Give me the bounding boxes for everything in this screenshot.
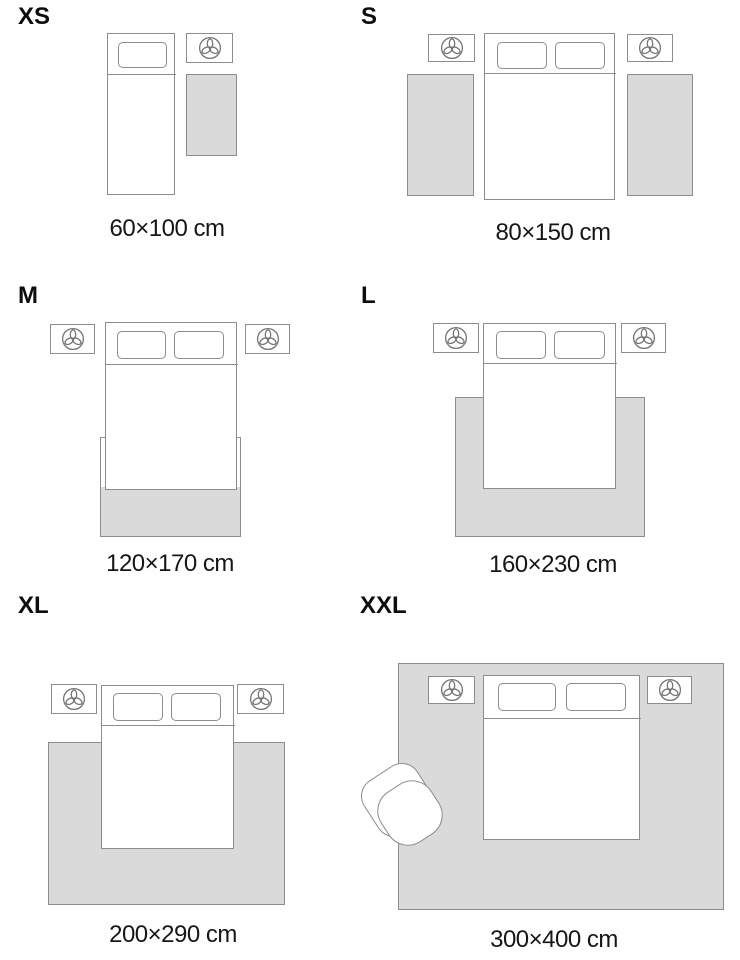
rug-s-left xyxy=(407,74,474,196)
nightstand-left xyxy=(428,34,475,62)
pillow-left xyxy=(117,331,166,359)
dimension-label-m: 120×170 cm xyxy=(40,550,300,579)
plant-icon xyxy=(632,326,656,350)
double-bed xyxy=(483,675,640,840)
bed-headboard-line xyxy=(101,725,235,726)
pillow-right xyxy=(555,42,605,69)
dimension-label-xxl: 300×400 cm xyxy=(424,926,684,955)
bed-headboard-line xyxy=(484,73,616,74)
size-label-l: L xyxy=(361,282,376,311)
single-bed xyxy=(107,33,175,195)
plant-icon xyxy=(440,36,464,60)
plant-icon xyxy=(658,678,682,702)
dimension-label-xl: 200×290 cm xyxy=(43,921,303,950)
bed-headboard-line xyxy=(483,718,641,719)
dimension-label-xs: 60×100 cm xyxy=(37,215,297,244)
size-label-m: M xyxy=(18,282,38,311)
plant-icon xyxy=(440,678,464,702)
pillow-right xyxy=(171,693,221,721)
nightstand-left xyxy=(433,323,479,353)
dimension-label-l: 160×230 cm xyxy=(423,551,683,580)
pillow-right xyxy=(174,331,224,359)
plant-icon xyxy=(198,36,222,60)
pillow-left xyxy=(498,683,556,711)
nightstand-left xyxy=(51,684,97,714)
size-label-s: S xyxy=(361,3,377,32)
rug-xs xyxy=(186,74,237,156)
pillow-right xyxy=(554,331,605,359)
plant-icon xyxy=(62,687,86,711)
nightstand xyxy=(186,33,233,63)
plant-icon xyxy=(638,36,662,60)
rug-s-right xyxy=(627,74,693,196)
pillow-left xyxy=(496,331,546,359)
plant-icon xyxy=(249,687,273,711)
pillow-left xyxy=(497,42,547,69)
size-label-xxl: XXL xyxy=(360,592,407,621)
nightstand-right xyxy=(621,323,666,353)
pillow xyxy=(118,42,167,68)
double-bed xyxy=(484,33,615,200)
double-bed xyxy=(483,323,616,489)
nightstand-right xyxy=(647,676,692,704)
double-bed xyxy=(105,322,237,490)
size-label-xl: XL xyxy=(18,592,49,621)
bed-headboard-line xyxy=(107,74,176,75)
rug-visible-area xyxy=(101,487,240,536)
nightstand-right xyxy=(245,324,290,354)
bed-headboard-line xyxy=(105,364,238,365)
bed-headboard-line xyxy=(483,363,617,364)
pillow-left xyxy=(113,693,163,721)
size-label-xs: XS xyxy=(18,3,50,32)
nightstand-left xyxy=(428,676,475,704)
nightstand-left xyxy=(50,324,95,354)
dimension-label-s: 80×150 cm xyxy=(423,219,683,248)
nightstand-right xyxy=(627,34,673,62)
pillow-right xyxy=(566,683,626,711)
plant-icon xyxy=(444,326,468,350)
nightstand-right xyxy=(237,684,284,714)
plant-icon xyxy=(256,327,280,351)
rug-size-guide: XS 60×100 cm S xyxy=(0,0,740,960)
plant-icon xyxy=(61,327,85,351)
double-bed xyxy=(101,685,234,849)
